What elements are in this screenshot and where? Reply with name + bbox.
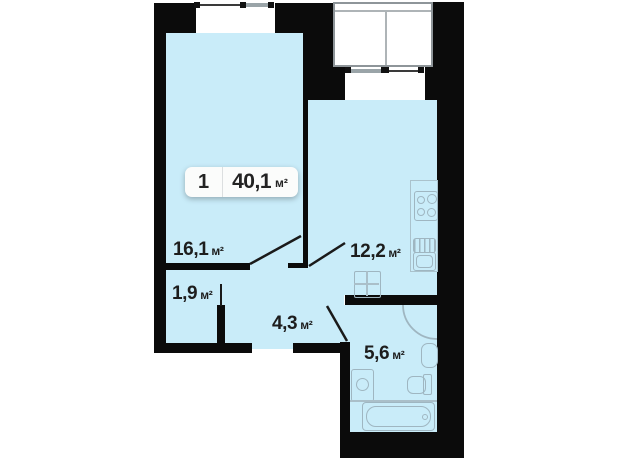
room-area-unit: м² <box>392 348 404 362</box>
floor-plan: 1 40,1 м² 16,1м² 12,2м² 1,9м² 4,3м² 5,6м… <box>0 0 620 460</box>
sink-bowl-icon <box>416 255 433 268</box>
washer-drum-icon <box>356 378 369 391</box>
room-label-bathroom: 5,6м² <box>364 344 404 363</box>
wall-top-left <box>154 3 196 33</box>
dining-table-icon <box>354 271 381 298</box>
wall-bottom-left <box>154 343 252 353</box>
wall-closet <box>217 305 225 343</box>
balcony <box>333 2 433 67</box>
badge-total-area: 40,1 <box>232 170 271 194</box>
burner-icon <box>427 194 437 204</box>
room-area-unit: м² <box>200 288 212 302</box>
room-area-value: 4,3 <box>272 313 297 334</box>
wall-right <box>437 100 464 458</box>
window-niche-left <box>196 7 275 33</box>
window-niche-right <box>345 73 425 100</box>
wall-living-bottom <box>166 263 250 270</box>
room-area-value: 5,6 <box>364 343 389 364</box>
wall-stub <box>288 263 308 268</box>
balcony-glazing-line <box>335 10 431 12</box>
living-room <box>166 33 303 263</box>
room-area-unit: м² <box>211 244 223 258</box>
burner-icon <box>417 208 425 216</box>
badge-room-count: 1 <box>185 167 222 197</box>
room-area-unit: м² <box>300 318 312 332</box>
balcony-divider <box>385 10 387 65</box>
wall-right-top <box>433 2 464 67</box>
wall-living-kitchen <box>303 100 308 268</box>
drain-icon <box>422 414 428 420</box>
toilet-icon <box>407 376 426 394</box>
badge-unit: м² <box>275 176 288 190</box>
wall-right-window <box>425 67 464 100</box>
basin-icon <box>421 343 438 368</box>
room-area-value: 12,2 <box>350 241 385 262</box>
burner-icon <box>427 208 436 217</box>
room-area-value: 1,9 <box>172 283 197 304</box>
room-label-living: 16,1м² <box>173 240 223 259</box>
area-badge: 1 40,1 м² <box>185 167 298 197</box>
room-label-closet: 1,9м² <box>172 284 212 303</box>
room-label-hallway: 4,3м² <box>272 314 312 333</box>
burner-icon <box>417 196 425 204</box>
table-cross <box>366 271 368 296</box>
badge-divider <box>222 167 223 197</box>
wall-left <box>154 3 166 353</box>
room-area-value: 16,1 <box>173 239 208 260</box>
room-area-unit: м² <box>388 246 400 260</box>
room-label-kitchen: 12,2м² <box>350 242 400 261</box>
wall-top-middle <box>275 3 333 33</box>
sink-drainer-icon <box>413 238 436 253</box>
entrance-opening <box>252 343 293 349</box>
